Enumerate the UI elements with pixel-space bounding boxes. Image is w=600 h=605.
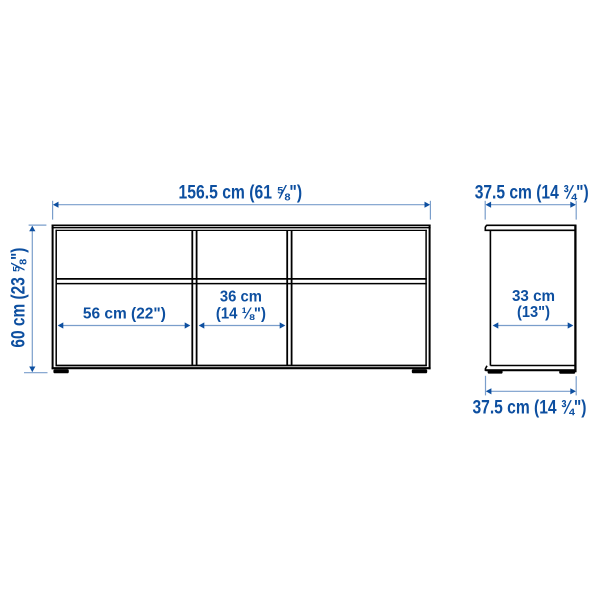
svg-text:36 cm: 36 cm <box>220 289 262 306</box>
svg-text:60 cm (23 ⅝"): 60 cm (23 ⅝") <box>8 248 30 348</box>
svg-text:156.5 cm (61 ⅝"): 156.5 cm (61 ⅝") <box>179 181 303 203</box>
svg-text:(14 ⅛"): (14 ⅛") <box>216 306 266 323</box>
svg-text:37.5 cm (14 ¾"): 37.5 cm (14 ¾") <box>473 396 587 418</box>
svg-text:(13"): (13") <box>517 304 550 321</box>
svg-text:33 cm: 33 cm <box>512 288 555 305</box>
svg-text:56 cm (22"): 56 cm (22") <box>83 306 166 323</box>
svg-text:37.5 cm (14 ¾"): 37.5 cm (14 ¾") <box>475 181 589 203</box>
